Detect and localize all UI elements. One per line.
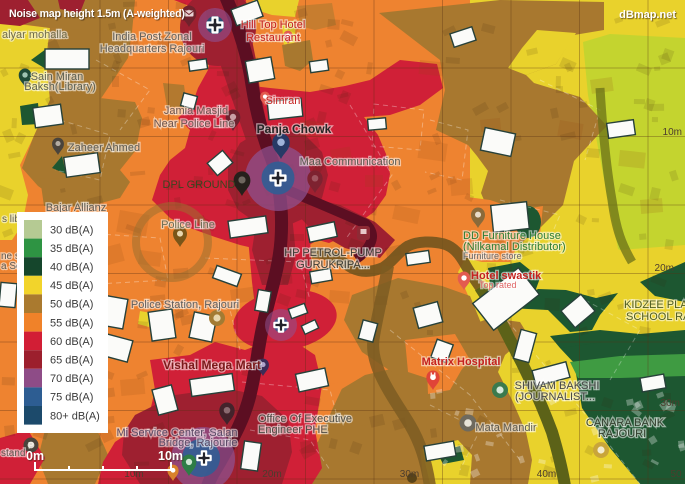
svg-text:Police Line: Police Line <box>161 219 215 231</box>
svg-text:India Post Zonal: India Post Zonal <box>112 31 192 43</box>
svg-text:75 dB(A): 75 dB(A) <box>50 392 93 404</box>
svg-text:50 dB(A): 50 dB(A) <box>50 299 93 311</box>
svg-text:Bridge, Rajourie: Bridge, Rajourie <box>159 437 238 449</box>
svg-text:20m: 20m <box>262 469 281 480</box>
svg-text:40 dB(A): 40 dB(A) <box>50 262 93 274</box>
svg-text:Near Police Line: Near Police Line <box>154 118 235 130</box>
svg-text:70 dB(A): 70 dB(A) <box>50 373 93 385</box>
svg-text:0m: 0m <box>26 449 44 463</box>
svg-text:60 dB(A): 60 dB(A) <box>50 336 93 348</box>
svg-text:30 dB(A): 30 dB(A) <box>50 224 93 236</box>
svg-text:30m: 30m <box>661 398 680 409</box>
svg-text:Panja Chowk: Panja Chowk <box>257 122 332 136</box>
svg-text:Engineer PHE: Engineer PHE <box>258 424 328 436</box>
svg-text:RAJOURI: RAJOURI <box>598 428 646 440</box>
svg-text:HP PETROL-PUMP: HP PETROL-PUMP <box>284 247 382 259</box>
svg-text:Furniture store: Furniture store <box>463 251 522 261</box>
svg-text:Jamia Masjid: Jamia Masjid <box>164 105 228 117</box>
svg-text:Baksh(Library): Baksh(Library) <box>24 81 96 93</box>
svg-text:65 dB(A): 65 dB(A) <box>50 355 93 367</box>
svg-text:alyar mohalla: alyar mohalla <box>2 29 68 41</box>
svg-text:Maa Communication: Maa Communication <box>300 156 401 168</box>
svg-text:Matrix Hospital: Matrix Hospital <box>422 356 501 368</box>
svg-text:Zaheer Ahmed: Zaheer Ahmed <box>68 142 140 154</box>
svg-text:Noise map height 1.5m (A-weigh: Noise map height 1.5m (A-weighted) <box>9 8 185 20</box>
svg-text:55 dB(A): 55 dB(A) <box>50 317 93 329</box>
svg-text:40m: 40m <box>537 469 556 480</box>
svg-text:50: 50 <box>670 469 682 480</box>
svg-text:10m: 10m <box>663 127 682 138</box>
svg-text:stand: stand <box>1 448 25 459</box>
svg-text:20m: 20m <box>655 263 674 274</box>
svg-text:45 dB(A): 45 dB(A) <box>50 280 93 292</box>
svg-text:SCHOOL RAJ: SCHOOL RAJ <box>626 311 685 323</box>
svg-text:Top rated: Top rated <box>479 280 517 290</box>
svg-text:30m: 30m <box>400 469 419 480</box>
svg-text:Simran: Simran <box>266 95 301 107</box>
svg-text:Hill Top Hotel: Hill Top Hotel <box>241 19 306 31</box>
svg-text:Police Station, Rajouri: Police Station, Rajouri <box>131 299 239 311</box>
svg-text:H: H <box>430 372 436 381</box>
svg-text:Restaurant: Restaurant <box>246 32 300 44</box>
svg-text:dBmap.net: dBmap.net <box>619 9 676 21</box>
svg-text:80+ dB(A): 80+ dB(A) <box>50 410 100 422</box>
svg-text:Headquarters Rajouri: Headquarters Rajouri <box>100 43 205 55</box>
svg-text:Mata Mandir: Mata Mandir <box>475 422 536 434</box>
svg-text:35 dB(A): 35 dB(A) <box>50 243 93 255</box>
svg-text:DPL GROUND: DPL GROUND <box>163 179 236 191</box>
svg-text:KIDZEE PLAY: KIDZEE PLAY <box>624 299 685 311</box>
svg-text:(JOURNALIST...: (JOURNALIST... <box>515 391 595 403</box>
svg-text:GURUKRIPA...: GURUKRIPA... <box>296 259 370 271</box>
svg-text:Vishal Mega Mart: Vishal Mega Mart <box>163 358 261 372</box>
svg-text:10m: 10m <box>158 449 183 463</box>
